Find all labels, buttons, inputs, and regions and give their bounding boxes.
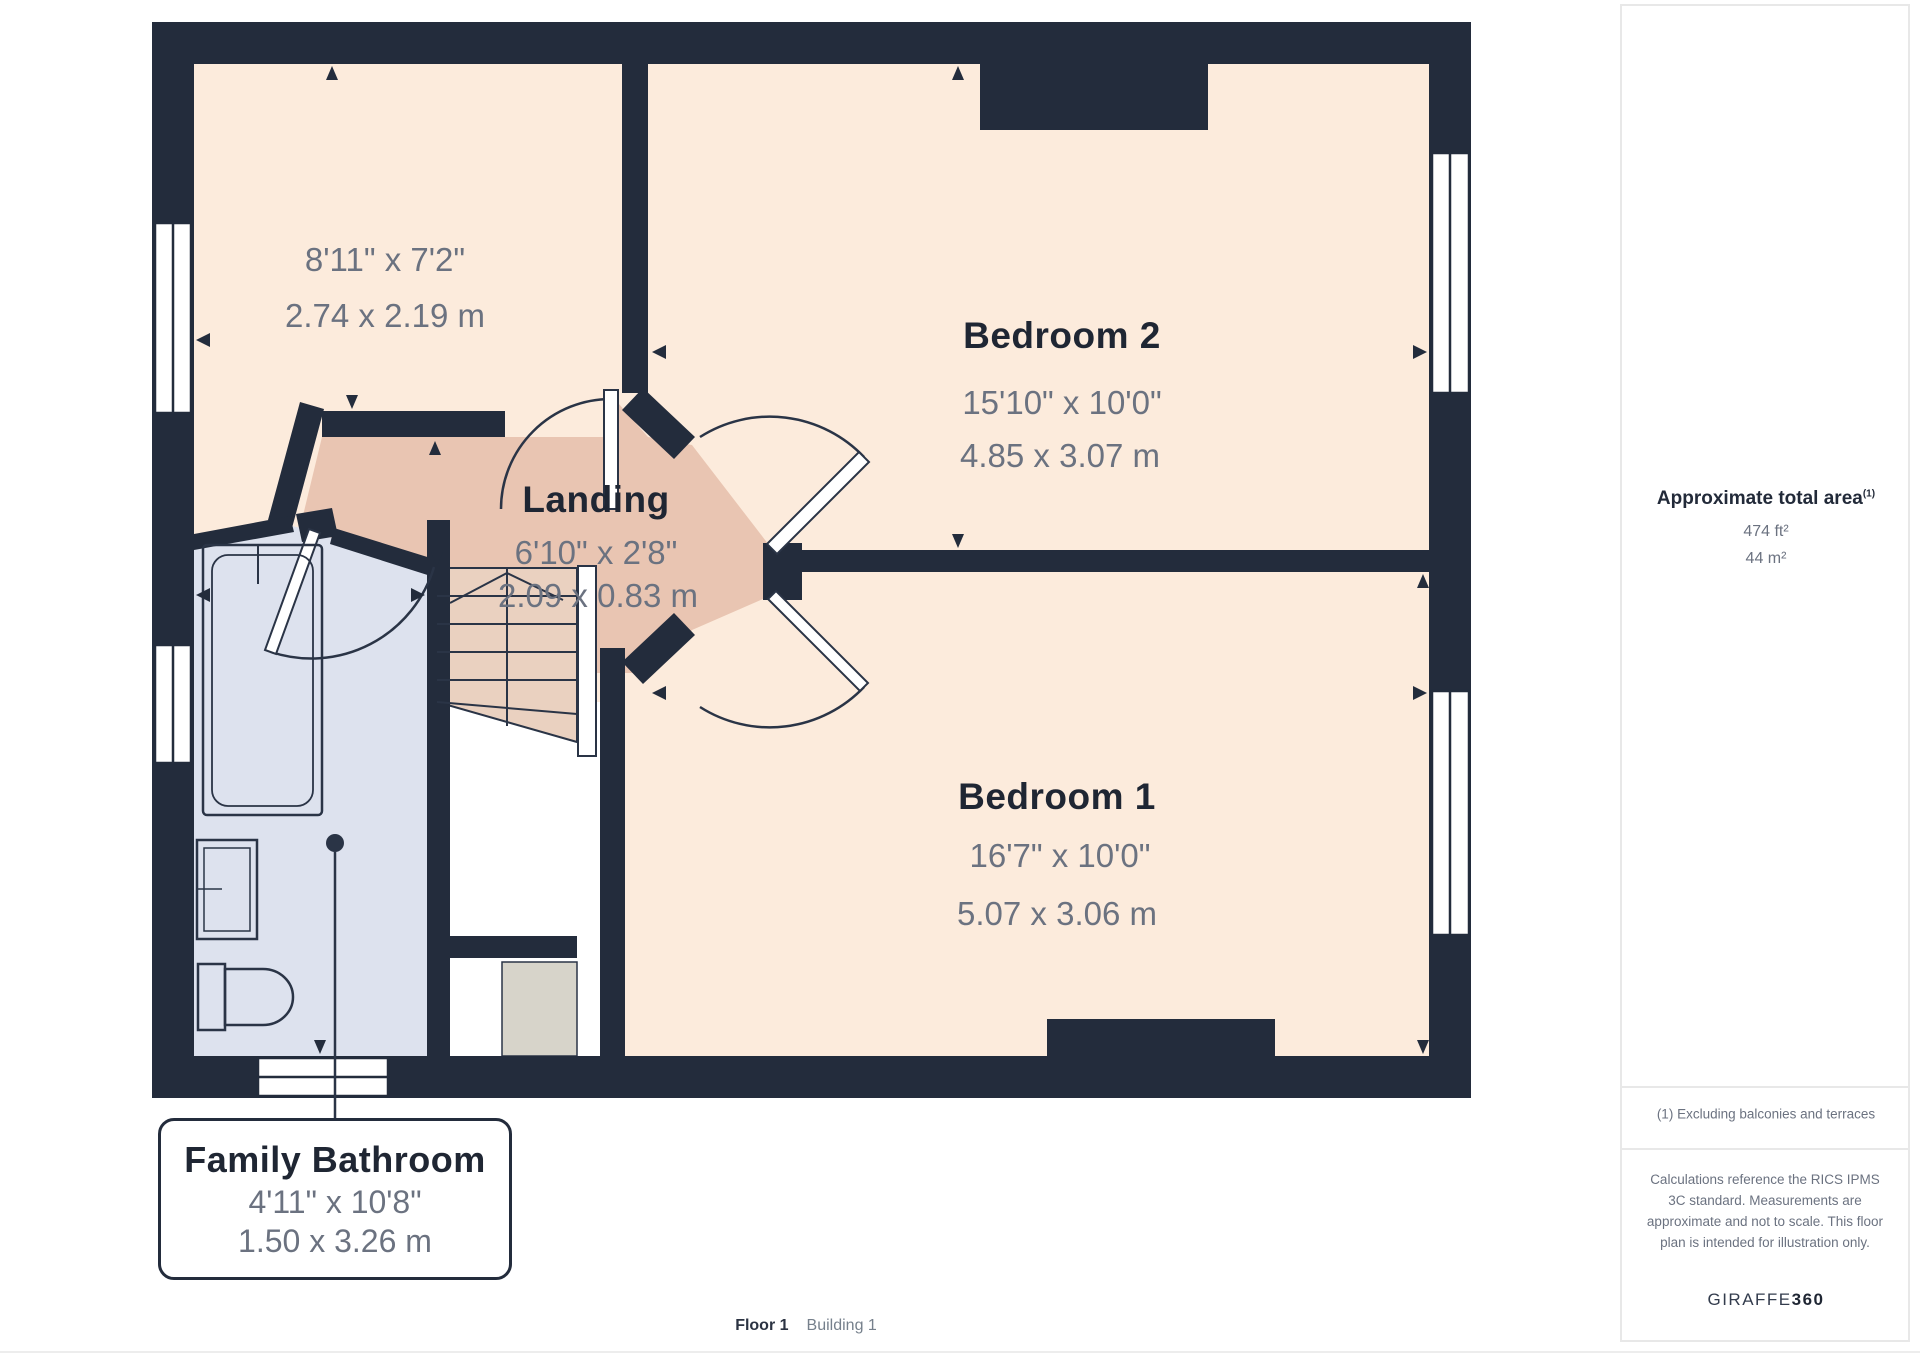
bathroom-name: Family Bathroom [184,1139,486,1181]
total-area-footnote-ref: (1) [1863,489,1875,500]
floorplan-page: { "plan": { "rooms": { "store": {"dim_ft… [0,0,1920,1358]
bedroom2-dim-ft: 15'10" x 10'0" [962,384,1161,422]
wall-stairwell-bottom [450,936,577,958]
bathroom-dim-ft: 4'11" x 10'8" [248,1185,421,1220]
wall-notch-top [980,64,1208,130]
total-area-m: 44 m² [1746,550,1787,568]
family-bathroom-label: Family Bathroom 4'11" x 10'8" 1.50 x 3.2… [158,1118,512,1280]
wall-door-hinge-block [763,543,802,600]
landing-dim-ft: 6'10" x 2'8" [515,534,678,572]
bedroom1-name: Bedroom 1 [958,776,1156,818]
wall-top [152,22,1471,64]
wall-bathroom-right [427,520,450,1056]
bathroom-dim-m: 1.50 x 3.26 m [238,1224,432,1259]
giraffe360-logo: GIRAFFE360 [1707,1290,1824,1310]
sidebar-disclaimer: Calculations reference the RICS IPMS 3C … [1640,1170,1890,1254]
total-area-title: Approximate total area(1) [1657,488,1875,510]
brand-name: GIRAFFE [1707,1290,1791,1309]
wall-bedroom1-left [600,648,625,1056]
leader-dot [326,834,344,852]
landing-name: Landing [522,479,669,521]
lower-roof-area [502,962,577,1056]
wall-partition-bedrooms [800,550,1431,572]
store-dim-ft: 8'11" x 7'2" [305,241,465,279]
wall-notch-bottom [1047,1019,1275,1056]
bedroom2-name: Bedroom 2 [963,315,1161,357]
store-dim-m: 2.74 x 2.19 m [285,297,485,335]
footer-border [0,1351,1920,1353]
bedroom1-dim-m: 5.07 x 3.06 m [957,895,1157,933]
sidebar-divider [1621,1086,1909,1088]
landing-dim-m: 2.09 x 0.83 m [498,577,698,615]
bathroom-fill [194,526,427,1056]
footer-bar: Floor 1 Building 1 [735,1317,877,1335]
sidebar-divider [1621,1148,1909,1150]
bedroom1-dim-ft: 16'7" x 10'0" [970,837,1151,875]
total-area-ft: 474 ft² [1743,523,1788,541]
brand-suffix: 360 [1792,1290,1825,1309]
bedroom2-dim-m: 4.85 x 3.07 m [960,437,1160,475]
footer-building: Building 1 [807,1317,877,1335]
sidebar-panel [1620,4,1910,1342]
wall-left [152,22,194,1098]
footer-floor: Floor 1 [735,1317,788,1335]
total-area-title-text: Approximate total area [1657,488,1863,509]
sidebar-footnote: (1) Excluding balconies and terraces [1657,1107,1875,1122]
wall-partition-store [622,64,648,393]
wall-store-bottom [322,411,505,437]
